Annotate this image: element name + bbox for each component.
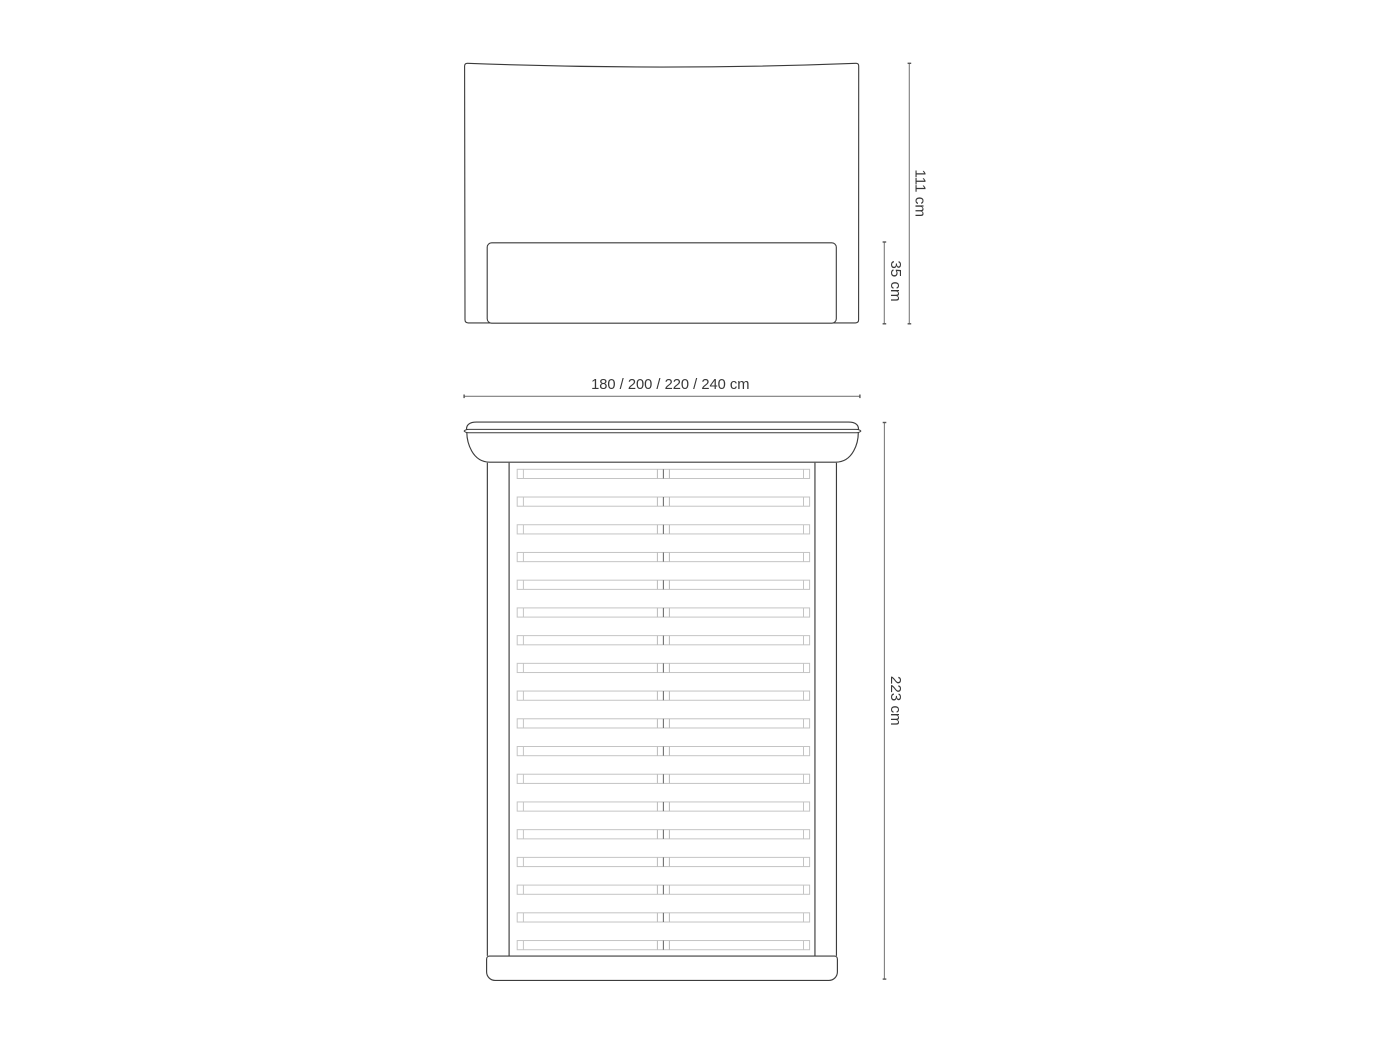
svg-text:111 cm: 111 cm bbox=[912, 169, 929, 217]
svg-text:35 cm: 35 cm bbox=[887, 260, 904, 301]
svg-text:180 / 200 / 220 / 240 cm: 180 / 200 / 220 / 240 cm bbox=[591, 377, 749, 393]
svg-text:223 cm: 223 cm bbox=[887, 676, 904, 726]
